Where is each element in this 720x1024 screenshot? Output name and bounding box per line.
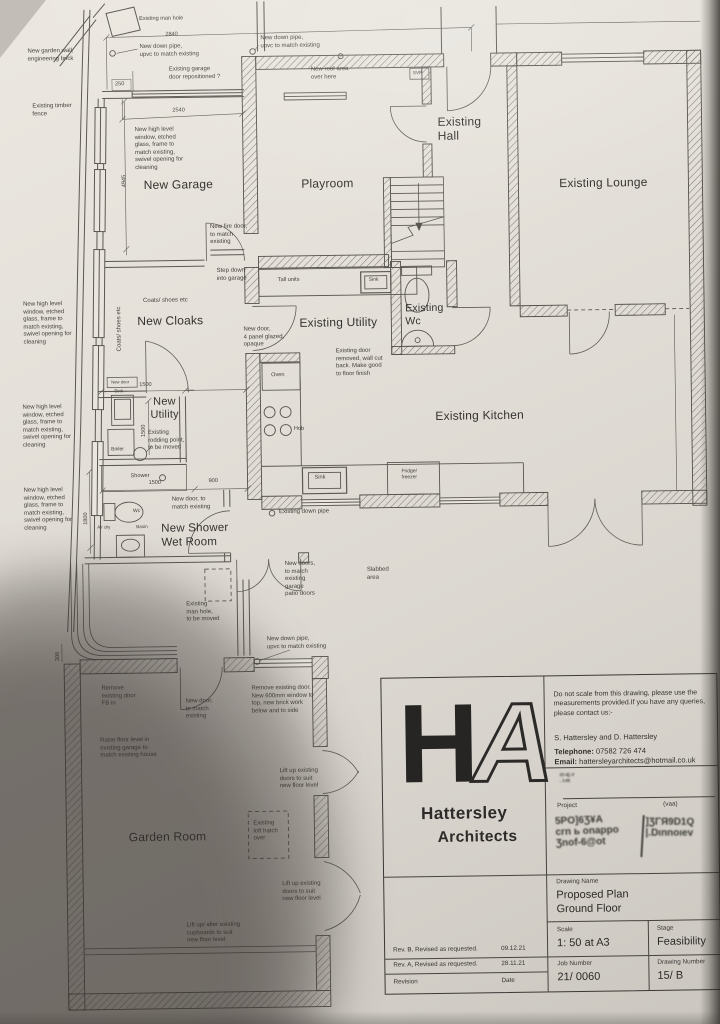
title-block-line-5 (385, 971, 547, 974)
brand-subname: Architects (438, 828, 518, 847)
note-slabbed-area: Slabbed area (367, 567, 389, 582)
note-high-window-3: New high level window, etched glass, fra… (24, 487, 73, 533)
dim-900: 900 (209, 478, 218, 485)
note-coats-shoes: Coats/ shoes etc (143, 297, 188, 305)
title-block-line-2 (384, 872, 719, 878)
fixture-label-shower: Shower (130, 473, 149, 480)
room-label-playroom: Playroom (301, 176, 353, 191)
dim-4945: 4945 (121, 175, 128, 188)
project-note: (vaa) (663, 801, 678, 808)
telephone-line: Telephone: 07582 726 474 (554, 746, 646, 757)
note-garage-door: Existing garage door repositioned ? (169, 66, 221, 82)
note-down-pipe-left: New down pipe, upvc to match existing (139, 43, 199, 59)
fixture-label-svp: SVP (413, 70, 422, 76)
room-label-new-cloaks: New Cloaks (137, 313, 203, 328)
dashed-lines (201, 308, 697, 859)
note-lift-doors-2: Lift up existing doors to suit new floor… (282, 881, 321, 904)
note-new-door-garden: New door, to match existing (186, 698, 213, 721)
stage-value: Feasibility (657, 934, 706, 949)
dim-1800: 1800 (83, 512, 90, 525)
note-remove-door-600: Remove existing door. New 600mm window t… (251, 685, 313, 716)
note-high-window-2: New high level window, etched glass, fra… (22, 404, 71, 450)
fixture-label-sink-units: Sink (369, 277, 379, 283)
doors (142, 64, 648, 933)
fixture-label-fridge: Fridge/ freezer (401, 468, 417, 481)
windows (246, 53, 652, 667)
note-step-down: Step down into garage (217, 268, 247, 283)
stamp-smudge-top: cr-q;-r . i-m (560, 773, 575, 784)
revision-a-note: Rev. A, Revised as requested. (393, 960, 477, 968)
room-label-existing-wc: Existing Wc (405, 302, 444, 328)
room-label-existing-utility: Existing Utility (299, 315, 377, 330)
note-patio-doors: New doors, to match existing garage pati… (285, 561, 316, 599)
dim-1500-b: 1500 (141, 425, 148, 438)
title-block: H A Hattersley Architects Do not scale f… (380, 673, 720, 995)
dimensions (53, 24, 483, 663)
email-label: Email: (554, 757, 577, 766)
note-fire-door: New fire door, to match existing (210, 224, 247, 247)
note-roof-area: New roof area over here (311, 66, 349, 82)
note-lift-cupboards: Lift up/ alter existing cupboards to sui… (187, 922, 241, 945)
project-scribble-right: ]ƷΓЯ9D1Q |.Dınnoıev (645, 817, 694, 839)
note-lift-doors-1: Lift up existing doors to suit new floor… (280, 768, 319, 791)
scribble-stroke (640, 815, 644, 857)
note-door-wet-room: New door, to match existing (172, 496, 211, 512)
revision-a-date: 28.11.21 (501, 960, 525, 967)
dim-2540: 2540 (172, 107, 185, 114)
note-raise-floor: Raise floor level in existing garage to … (100, 737, 157, 760)
hattersley-architects-logo: H A (389, 682, 556, 809)
note-down-pipe-garden: New down pipe, upvc to match existing (267, 635, 327, 651)
paper-sheet: New Garage Playroom Existing Hall Existi… (0, 0, 720, 1024)
room-label-existing-hall: Existing Hall (437, 114, 481, 143)
title-block-line-4 (385, 954, 720, 960)
dim-1500-c: 1500 (149, 480, 162, 487)
room-label-existing-kitchen: Existing Kitchen (435, 408, 524, 424)
fixtures (96, 43, 680, 667)
title-block-line-1 (545, 765, 718, 768)
job-number-label: Job Number (557, 960, 592, 967)
room-label-new-utility: New Utility (150, 396, 179, 423)
fixture-label-boiler: Boiler (111, 446, 124, 452)
walls-hatched (56, 50, 714, 1010)
drawing-content: New Garage Playroom Existing Hall Existi… (0, 0, 720, 1024)
fixture-label-new-door: New door (111, 379, 129, 384)
drawing-name-label: Drawing Name (556, 878, 598, 886)
stairs (390, 177, 444, 268)
title-block-line-stamp (563, 796, 715, 799)
note-high-window-garage: New high level window, etched glass, fra… (135, 126, 184, 172)
fixture-label-oven: Oven (271, 372, 284, 379)
note-door-4panel: New door, 4 panel glazed, opaque (243, 326, 284, 349)
dim-308: 308 (55, 652, 62, 661)
title-block-line-3 (547, 919, 720, 922)
project-label: Project (557, 802, 577, 809)
revision-column-label: Revision (394, 978, 418, 985)
email-line: Email: hattersleyarchitects@hotmail.co.u… (554, 755, 695, 767)
date-column-label: Date (502, 977, 515, 984)
room-label-garden-room: Garden Room (129, 829, 207, 844)
logo-letter-h: H (397, 682, 480, 806)
fixture-label-hob: Hob (294, 426, 304, 433)
note-door-removed: Existing door removed, wall cut back. Ma… (336, 348, 383, 379)
fixture-label-tall-units: Tall units (278, 277, 300, 284)
note-man-hole-moved: Existing man hole, to be moved (186, 601, 219, 624)
note-remove-door-fb: Remove existing door FB in (101, 685, 135, 708)
site-lines (53, 0, 709, 660)
scale-value: 1: 50 at A3 (557, 936, 610, 951)
note-timber-fence: Existing timber fence (32, 103, 72, 119)
note-high-window-1: New high level window, etched glass, fra… (23, 301, 72, 347)
walls-new (72, 89, 316, 955)
note-rodding-point: Existing rodding point, to be moved (148, 429, 185, 452)
room-label-wet-room: New Shower Wet Room (161, 522, 229, 551)
stage-label: Stage (657, 925, 674, 932)
drawing-number-label: Drawing Number (657, 958, 705, 966)
dim-1500-a: 1500 (139, 382, 152, 389)
note-down-pipe-mid: New down pipe, upvc to match existing (260, 35, 320, 51)
contact-names: S. Hattersley and D. Hattersley (554, 732, 657, 744)
title-block-divider-vertical (543, 676, 548, 991)
telephone-value: 07582 726 474 (596, 746, 646, 756)
fixture-label-sink-utility: Sink (114, 388, 123, 394)
drawing-number-value: 15/ B (657, 969, 683, 984)
photographed-floor-plan: New Garage Playroom Existing Hall Existi… (0, 0, 720, 1024)
fixture-label-basin: Basin (136, 524, 148, 530)
room-label-new-garage: New Garage (144, 177, 214, 192)
note-existing-man-hole: Existing man hole (139, 15, 183, 23)
note-coats-shoes-vertical: Coats/ shoes etc (116, 307, 124, 352)
revision-b-note: Rev. B, Revised as requested. (393, 945, 478, 953)
dim-250: 250 (115, 81, 124, 88)
logo-letter-a: A (465, 682, 557, 805)
revision-b-date: 09.12.21 (501, 945, 526, 952)
title-block-divider-stage (648, 920, 650, 990)
brand-name: Hattersley (421, 803, 507, 824)
scale-label: Scale (557, 926, 573, 933)
project-scribble-left: 5PO]6Ʒ¥A crn ь onappo Ʒnof-6@ot (555, 814, 620, 850)
disclaimer-text: Do not scale from this drawing, please u… (554, 688, 707, 718)
room-label-existing-lounge: Existing Lounge (559, 175, 648, 191)
floor-plan-linework (0, 0, 720, 1024)
fixture-label-wc: Wc (133, 508, 140, 514)
drawing-name-value: Proposed Plan Ground Floor (556, 887, 629, 917)
note-existing-down-pipe: Existing down pipe (279, 508, 329, 516)
email-value: hattersleyarchitects@hotmail.co.uk (579, 755, 696, 766)
fixture-label-air-dry: Air dry (97, 524, 110, 530)
dim-2840: 2840 (165, 31, 178, 38)
fixture-label-sink-kitchen: Sink (314, 474, 325, 481)
telephone-label: Telephone: (554, 747, 594, 757)
note-loft-hatch: Existing loft hatch over (253, 820, 278, 843)
job-number-value: 21/ 0060 (557, 970, 600, 985)
note-garden-wall: New garden wall, engineering brick (27, 48, 73, 64)
